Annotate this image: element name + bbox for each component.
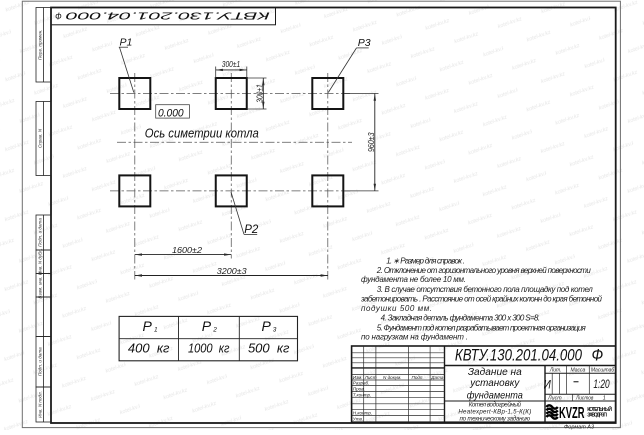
svg-text:КВТУ.130.201.04.000: КВТУ.130.201.04.000 (455, 346, 583, 365)
svg-text:960±3: 960±3 (367, 132, 376, 152)
svg-text:1000 кг: 1000 кг (188, 341, 230, 356)
svg-text:установку: установку (469, 378, 520, 389)
svg-text:500 кг: 500 кг (248, 341, 290, 356)
svg-text:Дата: Дата (430, 375, 444, 380)
svg-text:Инв. N подл.: Инв. N подл. (37, 391, 42, 418)
svg-text:P1: P1 (120, 36, 133, 48)
svg-text:Разраб.: Разраб. (353, 380, 370, 385)
svg-text:300±1: 300±1 (222, 60, 241, 69)
svg-text:1: 1 (603, 396, 606, 402)
svg-text:2: 2 (212, 327, 217, 334)
svg-text:Инв. N дубл.: Инв. N дубл. (37, 248, 42, 275)
svg-text:И: И (544, 377, 552, 391)
svg-text:400 кг: 400 кг (128, 341, 170, 356)
svg-text:5. Фундамент под котел разраб: 5. Фундамент под котел разрабатывает про… (377, 323, 587, 332)
svg-text:KVZR: KVZR (559, 405, 585, 422)
svg-text:Ф: Ф (592, 346, 604, 365)
svg-text:по техническому заданию: по техническому заданию (460, 415, 531, 422)
svg-text:N докум.: N докум. (383, 375, 402, 380)
svg-text:Листов: Листов (575, 396, 594, 402)
svg-text:300±1: 300±1 (255, 84, 264, 103)
svg-text:подушки 500 мм.: подушки 500 мм. (361, 304, 432, 313)
svg-text:Формат А3: Формат А3 (564, 425, 595, 430)
svg-text:КВТУ.130.201.04.000: КВТУ.130.201.04.000 (65, 10, 270, 21)
svg-text:3: 3 (273, 327, 277, 334)
svg-text:1. ∗ Размер для справок .: 1. ∗ Размер для справок . (386, 257, 465, 266)
svg-text:Масштаб: Масштаб (591, 367, 615, 373)
svg-text:P3: P3 (358, 37, 371, 49)
svg-text:1:20: 1:20 (593, 379, 610, 391)
svg-text:P: P (262, 318, 272, 334)
svg-text:2. Отклонение от горизонтальн: 2. Отклонение от горизонтального уровня … (376, 266, 592, 275)
svg-text:Н.контр.: Н.контр. (353, 410, 372, 415)
svg-text:Масса: Масса (571, 367, 586, 373)
svg-text:Перв. примен.: Перв. примен. (37, 29, 42, 60)
svg-text:P2: P2 (244, 224, 259, 236)
svg-text:Т.контр.: Т.контр. (353, 393, 372, 398)
svg-text:Ф: Ф (55, 10, 62, 21)
svg-text:ЗАВОД РЭП: ЗАВОД РЭП (587, 413, 607, 419)
svg-text:по нагрузкам на фундамент .: по нагрузкам на фундамент . (361, 333, 468, 342)
svg-text:Лит.: Лит. (549, 367, 562, 373)
svg-text:Задание на: Задание на (468, 367, 522, 378)
svg-text:P: P (143, 318, 153, 334)
svg-text:0.000: 0.000 (158, 108, 185, 120)
svg-text:Ось симетрии котла: Ось симетрии котла (145, 126, 259, 140)
svg-text:P: P (202, 318, 212, 334)
svg-text:Подп. и дата: Подп. и дата (37, 347, 42, 376)
svg-text:Лист: Лист (547, 396, 562, 402)
svg-text:Взам. инв. N: Взам. инв. N (37, 271, 42, 298)
svg-text:Подп. и дата: Подп. и дата (37, 218, 42, 247)
svg-text:Справ. N: Справ. N (37, 128, 42, 148)
svg-text:фундамента: фундамента (467, 389, 523, 401)
svg-text:3200±3: 3200±3 (217, 267, 247, 276)
svg-text:1: 1 (154, 327, 158, 334)
svg-text:забетонировать . Расстояние от: забетонировать . Расстояние от осей край… (360, 295, 603, 304)
svg-text:Утв.: Утв. (353, 416, 363, 421)
svg-text:1600±2: 1600±2 (172, 246, 203, 255)
svg-text:3. В случае отсутствия бетонн: 3. В случае отсутствия бетонного пола пл… (377, 285, 593, 294)
svg-text:Подп.: Подп. (412, 375, 424, 380)
svg-text:4. Закладная деталь фундамент: 4. Закладная деталь фундамента 300 х 300… (381, 314, 540, 323)
svg-text:фундамента не более 10 мм.: фундамента не более 10 мм. (361, 275, 466, 284)
svg-text:Пров.: Пров. (353, 387, 365, 392)
